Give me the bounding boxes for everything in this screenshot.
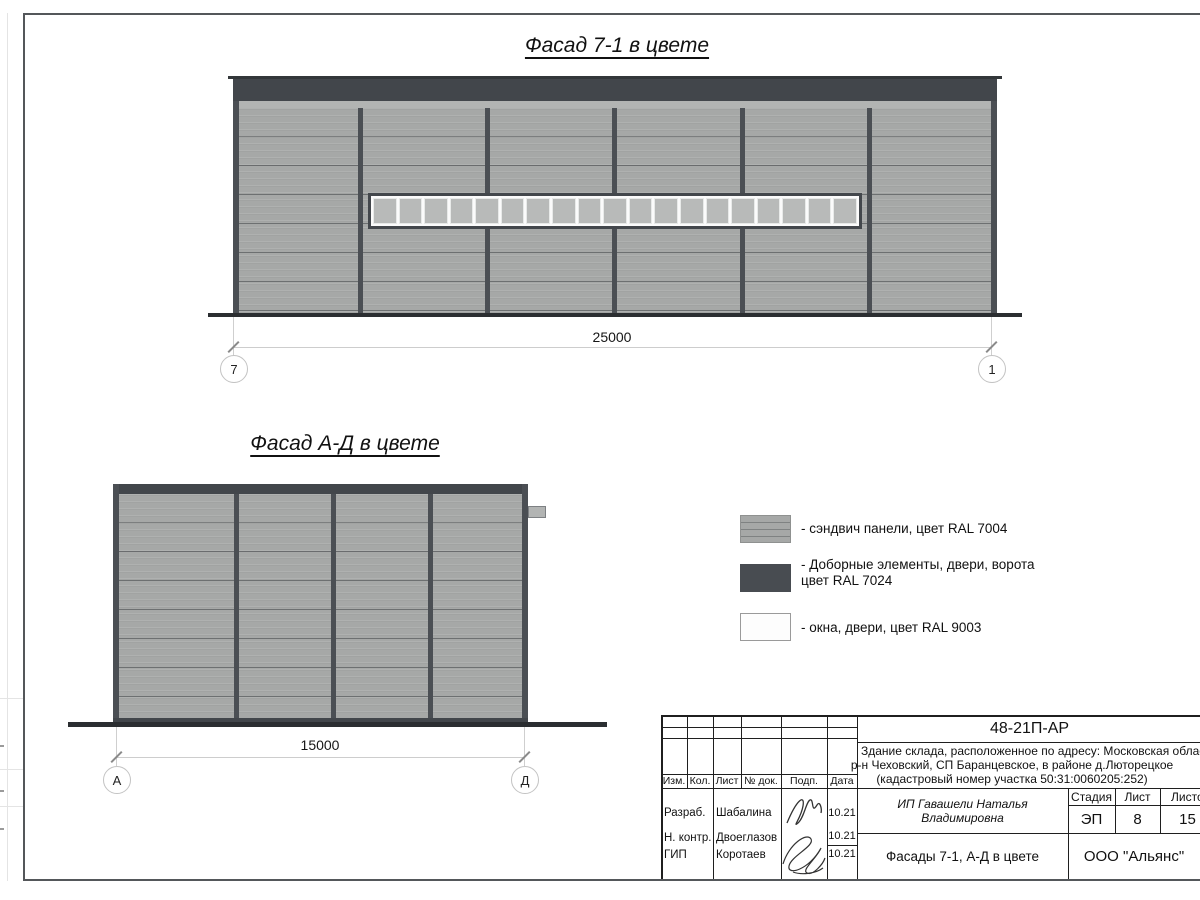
titleblock-sheet-value: 8 [1115,806,1160,832]
legend-swatch-trim-elements [740,564,791,592]
window-pane [757,198,781,224]
sheet-margin-divider [0,698,23,699]
facade2-extension-line-left [116,727,117,766]
legend-label-line: - Доборные элементы, двери, ворота [801,557,1181,573]
axis-marker-label: 1 [988,362,995,377]
facade1-top-band [233,79,997,101]
axis-marker-label: Д [521,773,530,788]
titleblock-date: 10.21 [827,847,857,861]
facade1-mullion [867,108,872,313]
window-pane [450,198,474,224]
titleblock-project-line3: (кадастровый номер участка 50:31:0060205… [857,772,1167,786]
window-pane [373,198,397,224]
signature-shabalina [783,793,825,831]
facade1-dimension-label: 25000 [512,329,712,345]
sheet-margin-mark [0,790,4,792]
titleblock-sheet-label: Лист [1115,789,1160,805]
titleblock-doc-number: 48-21П-АР [857,716,1200,742]
facade2-ground-line [68,722,607,727]
axis-marker-D: Д [511,766,539,794]
facade2-extension-line-right [524,727,525,766]
titleblock-col-list: Лист [713,774,741,788]
legend-label-windows-doors: - окна, двери, цвет RAL 9003 [801,620,1181,636]
legend-swatch-windows-doors [740,613,791,641]
window-pane [475,198,499,224]
window-pane [654,198,678,224]
titleblock-role: Н. контр. [664,831,714,845]
facade2-mullion [331,494,336,718]
facade2-sandwich-panels [119,494,522,718]
titleblock-line [857,742,1200,743]
sheet-frame-left [23,13,25,881]
legend-label-sandwich-panels: - сэндвич панели, цвет RAL 7004 [801,521,1181,537]
facade2-dimension-line [116,757,524,758]
window-pane [603,198,627,224]
facade1-title: Фасад 7-1 в цвете [417,34,817,58]
facade2-title: Фасад А-Д в цвете [195,432,495,456]
axis-marker-7: 7 [220,355,248,383]
titleblock-project-line2: р-н Чеховский, СП Баранцевское, в районе… [857,758,1167,772]
sheet-margin-line [7,13,8,881]
sheet-margin-mark [0,828,4,830]
titleblock-col-data: Дата [827,774,857,788]
window-pane [782,198,806,224]
facade2-dimension-label: 15000 [220,737,420,753]
window-pane [706,198,730,224]
drawing-sheet: Фасад 7-1 в цвете 25000 7 1 Фасад А-Д в … [0,0,1200,900]
titleblock-name: Двоеглазов [716,831,780,845]
titleblock-sheets-value: 15 [1160,806,1200,832]
titleblock-role: Разраб. [664,804,712,822]
titleblock-role: ГИП [664,848,714,862]
facade1-dimension-line [233,347,991,348]
window-pane [578,198,602,224]
sheet-margin-divider [0,769,23,770]
window-pane [680,198,704,224]
window-pane [552,198,576,224]
facade1-window-band [368,193,862,229]
legend-swatch-sandwich-panels [740,515,791,543]
titleblock-date: 10.21 [827,829,857,843]
facade2-gutter-outlet [528,506,546,518]
window-pane [501,198,525,224]
titleblock-name: Шабалина [716,804,780,822]
facade1-flashing-strip [233,101,997,108]
titleblock-sheets-label: Листов [1163,789,1200,805]
window-pane [731,198,755,224]
sheet-frame-top [23,13,1200,15]
facade2-mullion [428,494,433,718]
legend-label-line: цвет RAL 7024 [801,573,1181,589]
titleblock-col-izm: Изм. [661,774,687,788]
titleblock-col-doc: № док. [741,774,781,788]
titleblock-company: ООО "Альянс" [1068,834,1200,878]
facade2-corner-column-right [522,484,528,722]
titleblock-client: ИП Гавашели Наталья Владимировна [857,789,1068,832]
window-pane [399,198,423,224]
window-pane [424,198,448,224]
titleblock-stage-label: Стадия [1068,789,1115,805]
sheet-frame-bottom [23,879,1200,881]
titleblock-name: Коротаев [716,848,780,862]
titleblock-line [827,845,857,846]
axis-marker-label: А [113,773,122,788]
titleblock-col-podp: Подп. [781,774,827,788]
facade2-mullion [234,494,239,718]
sheet-margin-mark [0,745,4,747]
window-pane [526,198,550,224]
window-pane [833,198,857,224]
titleblock-sheet-title: Фасады 7-1, А-Д в цвете [857,834,1068,878]
facade2-top-frame [113,484,528,494]
facade1-mullion [358,108,363,313]
window-pane [808,198,832,224]
window-pane [629,198,653,224]
titleblock-date: 10.21 [827,804,857,822]
titleblock-border [661,715,663,879]
signature-dvoeglazov-korotaev [779,828,829,878]
legend-label-trim-elements: - Доборные элементы, двери, ворота цвет … [801,557,1181,589]
facade1-ground-line [208,313,1022,317]
titleblock-col-kol: Кол. [687,774,713,788]
facade2-corner-column-left [113,484,119,722]
titleblock-stage-value: ЭП [1068,806,1115,832]
axis-marker-1: 1 [978,355,1006,383]
titleblock-project-line1: Здание склада, расположенное по адресу: … [861,744,1200,758]
facade1-extension-line-right [991,317,992,356]
sheet-margin-divider [0,806,23,807]
axis-marker-label: 7 [230,362,237,377]
axis-marker-A: А [103,766,131,794]
facade1-corner-column-right [991,101,997,313]
facade1-corner-column-left [233,101,239,313]
facade1-extension-line-left [233,317,234,356]
